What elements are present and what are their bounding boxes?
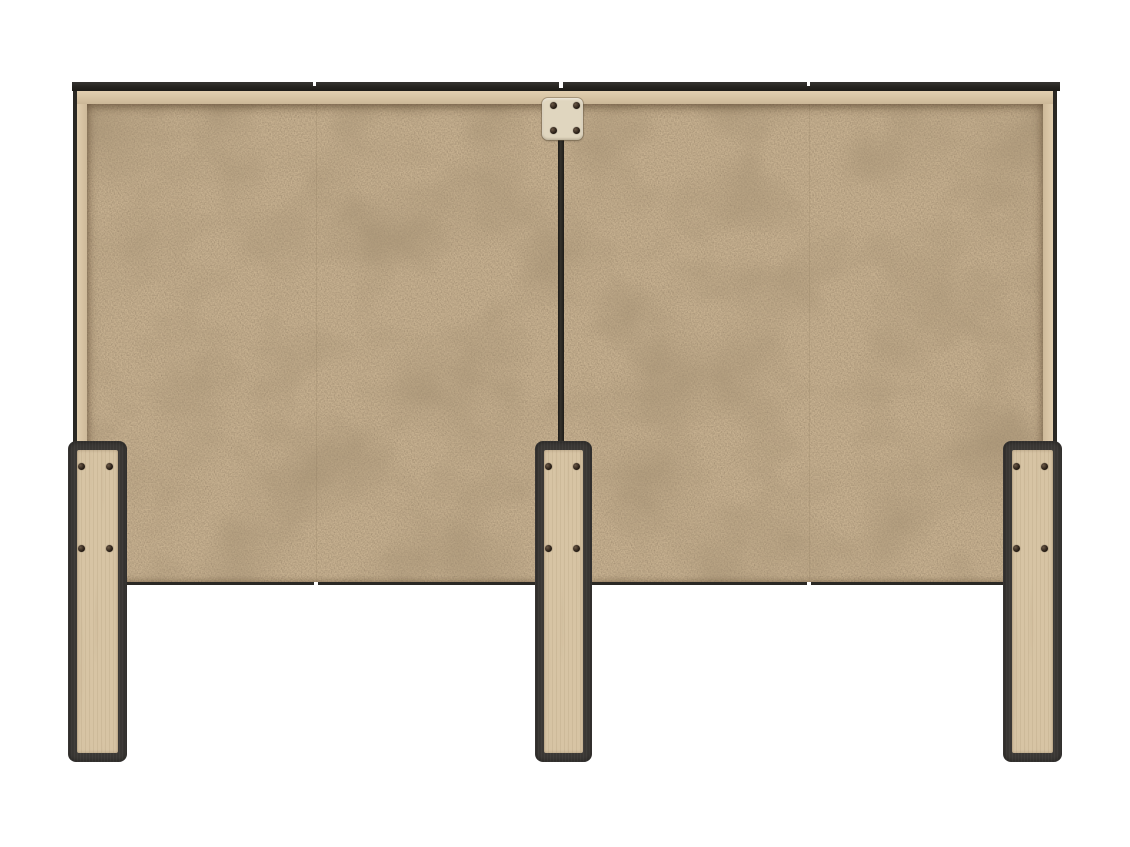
connector-bracket-plate	[542, 98, 583, 140]
cap-notch-right	[807, 82, 810, 86]
center-seam	[558, 87, 564, 444]
bracket-screw	[573, 102, 580, 109]
leg-grain-texture	[1012, 450, 1053, 753]
bracket-screw	[573, 127, 580, 134]
bracket-screw	[550, 127, 557, 134]
bracket-screw	[550, 102, 557, 109]
leg-grain-texture	[544, 450, 583, 753]
leg-screw	[1041, 463, 1048, 470]
bottom-seam-notch-left	[314, 582, 318, 585]
leg-wood-insert	[544, 450, 583, 753]
leg-right	[1003, 441, 1062, 762]
leg-screw	[78, 545, 85, 552]
leg-screw	[573, 545, 580, 552]
panel-top-trim-cap	[72, 82, 1060, 91]
leg-center	[535, 441, 592, 762]
cap-notch-left	[313, 82, 316, 86]
leg-screw	[573, 463, 580, 470]
leg-left	[68, 441, 127, 762]
headboard-back-render	[0, 0, 1130, 847]
leg-grain-texture	[77, 450, 118, 753]
leg-screw	[545, 545, 552, 552]
sub-panel-seam-right	[809, 104, 810, 582]
leg-wood-insert	[1012, 450, 1053, 753]
leg-screw	[545, 463, 552, 470]
leg-screw	[1013, 545, 1020, 552]
leg-screw	[106, 545, 113, 552]
leg-screw	[1013, 463, 1020, 470]
leg-screw	[1041, 545, 1048, 552]
leg-wood-insert	[77, 450, 118, 753]
cap-center-notch	[559, 82, 563, 88]
sub-panel-seam-left	[316, 104, 317, 582]
leg-screw	[78, 463, 85, 470]
bottom-seam-notch-right	[807, 582, 811, 585]
leg-screw	[106, 463, 113, 470]
